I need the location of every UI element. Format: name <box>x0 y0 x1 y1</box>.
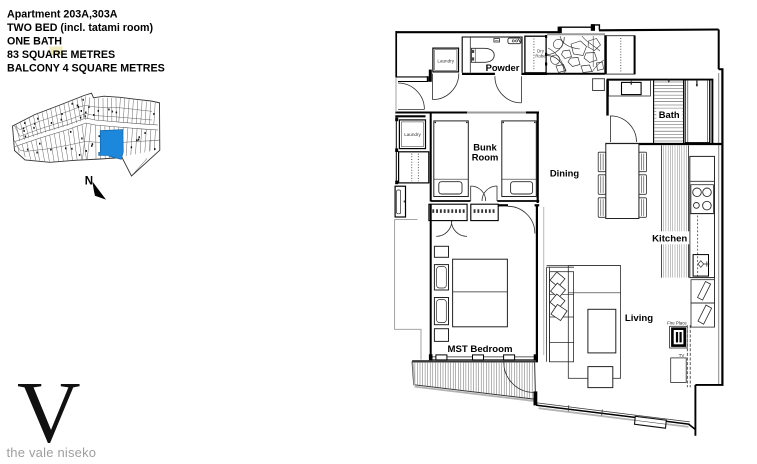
svg-text:83 SQUARE METRES: 83 SQUARE METRES <box>7 49 115 61</box>
svg-text:Living: Living <box>625 313 653 324</box>
svg-text:TWO BED (incl. tatami room): TWO BED (incl. tatami room) <box>7 22 154 34</box>
svg-text:BALCONY 4 SQUARE METRES: BALCONY 4 SQUARE METRES <box>7 62 165 74</box>
svg-text:TV: TV <box>679 353 685 358</box>
svg-text:the vale niseko: the vale niseko <box>7 445 97 460</box>
svg-text:Fire Place: Fire Place <box>667 321 687 326</box>
svg-text:MST Bedroom: MST Bedroom <box>447 344 512 355</box>
svg-text:Robe: Robe <box>535 54 546 59</box>
svg-text:Dining: Dining <box>550 168 579 179</box>
svg-text:Laundry: Laundry <box>437 58 454 63</box>
svg-text:Kitchen: Kitchen <box>652 234 687 245</box>
svg-text:Apartment 203A,303A: Apartment 203A,303A <box>7 8 118 20</box>
svg-text:Bath: Bath <box>659 109 680 120</box>
svg-text:N: N <box>85 175 93 187</box>
svg-text:Room: Room <box>472 152 499 163</box>
svg-text:Powder: Powder <box>486 62 520 73</box>
svg-text:Laundry: Laundry <box>404 132 421 137</box>
svg-text:ONE BATH: ONE BATH <box>7 35 62 47</box>
svg-text:Dry: Dry <box>537 48 545 53</box>
